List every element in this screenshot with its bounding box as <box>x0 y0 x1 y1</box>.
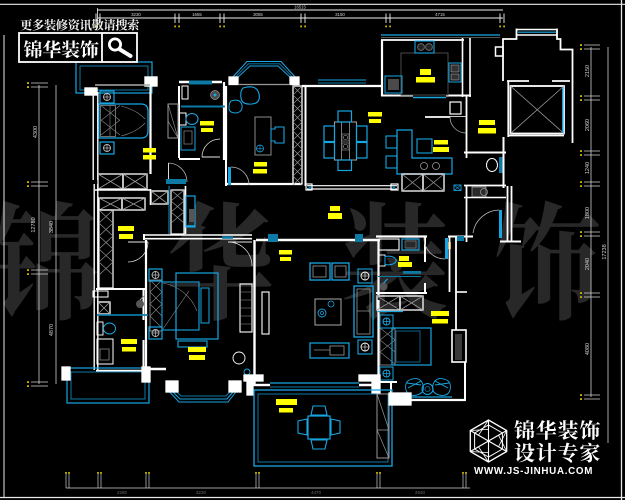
svg-text:2150: 2150 <box>585 65 591 77</box>
svg-text:3150: 3150 <box>335 12 345 17</box>
svg-text:3230: 3230 <box>196 490 207 495</box>
svg-text:4470: 4470 <box>311 490 322 495</box>
svg-text:3840: 3840 <box>49 221 55 233</box>
svg-text:1240: 1240 <box>585 162 591 174</box>
svg-text:4715: 4715 <box>435 12 445 17</box>
svg-text:1655: 1655 <box>192 12 202 17</box>
svg-text:17238: 17238 <box>602 244 608 259</box>
svg-text:2040: 2040 <box>585 258 591 270</box>
svg-text:4080: 4080 <box>585 343 591 355</box>
svg-text:WWW.JS-JINHUA.COM: WWW.JS-JINHUA.COM <box>474 466 593 477</box>
svg-text:4300: 4300 <box>33 126 39 138</box>
svg-text:2630: 2630 <box>415 490 426 495</box>
svg-text:2280: 2280 <box>117 490 128 495</box>
svg-text:2060: 2060 <box>585 119 591 131</box>
svg-text:3230: 3230 <box>131 12 141 17</box>
svg-text:3055: 3055 <box>253 12 263 17</box>
svg-text:4870: 4870 <box>49 324 55 336</box>
svg-text:1800: 1800 <box>585 207 591 219</box>
svg-text:16515: 16515 <box>294 4 306 9</box>
svg-text:12780: 12780 <box>31 217 37 232</box>
